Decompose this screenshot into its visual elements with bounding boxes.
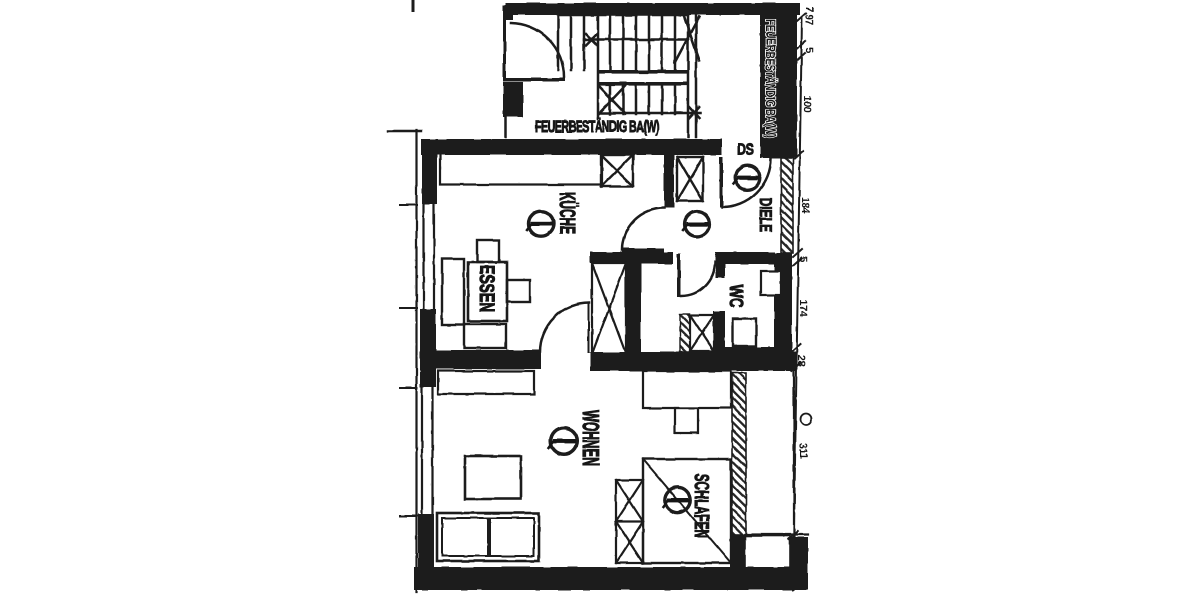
svg-text:7 97: 7 97 bbox=[803, 6, 815, 25]
svg-text:184: 184 bbox=[799, 197, 811, 214]
svg-text:DIELE: DIELE bbox=[756, 198, 775, 232]
svg-text:KÜCHE: KÜCHE bbox=[555, 192, 580, 234]
svg-text:5: 5 bbox=[797, 256, 809, 262]
svg-text:SCHLAFEN: SCHLAFEN bbox=[690, 474, 712, 538]
svg-text:5: 5 bbox=[803, 47, 815, 53]
svg-text:WC: WC bbox=[725, 285, 746, 308]
svg-text:174: 174 bbox=[797, 300, 809, 317]
svg-text:DS: DS bbox=[737, 142, 754, 159]
svg-text:28: 28 bbox=[795, 355, 807, 366]
svg-text:FEUERBESTÄNDIG BA(W): FEUERBESTÄNDIG BA(W) bbox=[535, 117, 659, 136]
svg-text:FEUERBESTÄNDIG BA(W): FEUERBESTÄNDIG BA(W) bbox=[763, 19, 778, 138]
svg-text:WOHNEN: WOHNEN bbox=[578, 410, 604, 466]
svg-text:ESSEN: ESSEN bbox=[475, 265, 498, 312]
svg-text:100: 100 bbox=[801, 96, 813, 113]
svg-text:311: 311 bbox=[797, 443, 809, 459]
